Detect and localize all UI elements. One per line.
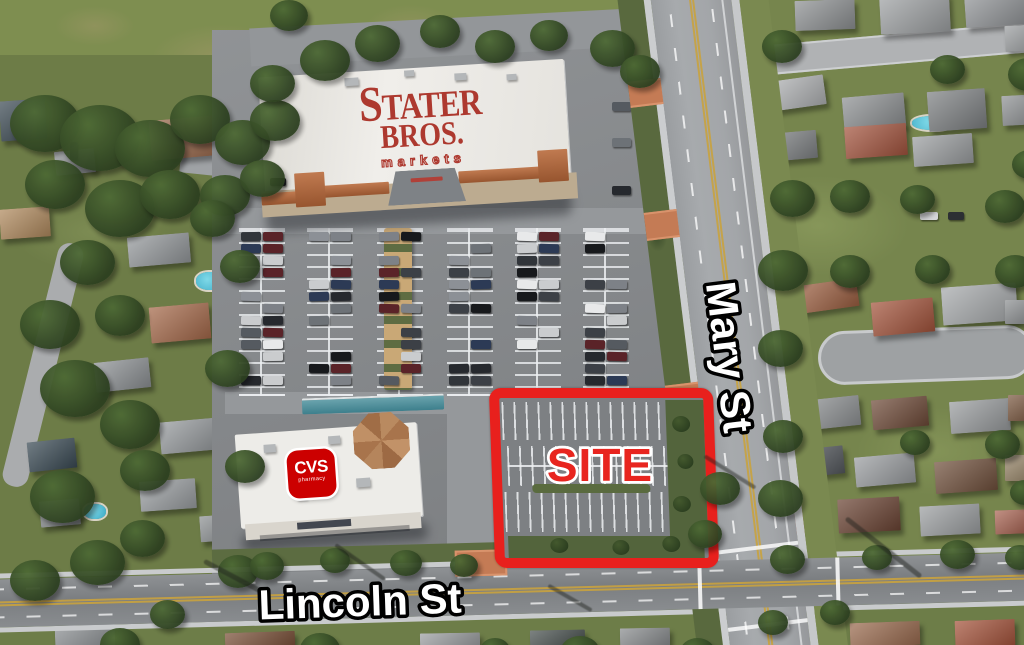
tree [150,600,185,629]
parked-car [471,340,491,349]
parked-car [517,316,537,326]
site-label-text: SITE [547,439,653,491]
tree [940,540,975,569]
tree [20,300,80,349]
house-roof [420,632,480,645]
cvs-logo-name: CVS [287,457,336,477]
parked-car [539,292,559,302]
parked-car [612,138,631,147]
parked-car [539,280,559,289]
house-roof [854,452,916,487]
parked-car [379,292,399,302]
parked-car [585,376,605,385]
tree [915,255,950,284]
parked-car [539,256,559,265]
cvs-logo: CVS pharmacy [286,448,337,499]
parked-car [585,244,605,253]
parked-car [331,268,351,277]
parked-car [539,328,559,337]
parked-car [241,292,261,302]
parked-car [585,352,605,361]
stater-bros-building: STATER BROS. markets [253,45,578,228]
parked-car [379,232,399,242]
parked-car [585,232,605,242]
parked-car [449,376,469,385]
parked-car [263,328,283,338]
parked-car [309,232,329,241]
parked-car [379,304,399,314]
house-roof [995,509,1024,534]
tree [250,65,295,102]
house-roof [1005,455,1024,481]
parked-car [331,292,351,302]
tree [205,350,250,387]
parked-car [449,364,469,374]
parked-car [471,376,491,385]
parked-car [517,244,537,254]
parked-car [607,280,627,289]
house-roof [794,0,855,31]
parked-car [517,340,537,349]
tree [420,15,460,48]
tree [900,185,935,214]
parked-car [449,268,469,277]
parked-car [585,280,605,289]
rooftop-unit [263,444,276,453]
tree [70,540,125,585]
parked-car [401,328,421,337]
house-roof [850,621,921,645]
parked-car [263,376,283,385]
parked-car [401,364,421,373]
parked-car [309,316,329,325]
tree [30,470,95,523]
parked-car [471,244,491,254]
parked-car [471,364,491,374]
tree [300,40,350,81]
center-line [0,574,1024,603]
parked-car [309,280,329,289]
parked-car [263,244,283,253]
rooftop-unit [506,74,516,81]
house-roof [1008,395,1024,421]
tree [240,160,285,197]
parked-car [585,328,605,338]
parked-car [449,280,469,289]
tree [220,250,260,283]
tree [190,200,235,237]
tree [900,430,930,455]
house-roof [837,496,901,533]
parked-car [471,280,491,290]
tree [40,360,110,417]
house-roof [919,503,980,536]
house-roof [1001,94,1024,126]
parked-car [241,232,261,241]
house-roof [927,88,988,132]
parked-car [449,256,469,265]
parked-car [517,292,537,301]
tree [60,240,115,285]
parked-car [607,304,627,313]
parked-car [241,316,261,325]
tree [830,255,870,288]
parked-car [585,304,605,314]
parked-car [612,186,631,195]
parked-car [331,364,351,373]
parked-car [241,328,261,338]
tree [985,190,1024,223]
parked-car [585,364,605,374]
tree [95,295,145,336]
parked-car [263,268,283,277]
tree [355,25,400,62]
house-roof [879,0,951,35]
parked-car [263,304,283,314]
tree [820,600,850,625]
parked-car [263,352,283,361]
driveway-apron [644,209,680,241]
parked-car [309,364,329,373]
house-roof [871,297,936,336]
house-roof [27,438,78,473]
parked-car [539,232,559,241]
tree [25,160,85,209]
parked-car [331,376,351,385]
house-roof [871,396,929,431]
parked-car [331,304,351,313]
tree [985,430,1020,459]
center-line [0,577,1024,606]
tree [530,20,568,51]
parked-car [585,340,605,350]
tree [475,30,515,63]
parked-car [379,256,399,265]
tree [830,180,870,213]
site-label: SITE [520,434,680,498]
parked-car [401,352,421,361]
rooftop-unit [356,477,371,487]
cul-de-sac [817,324,1024,386]
tree [225,450,265,483]
tree [100,400,160,449]
tree [10,560,60,601]
tree [688,520,722,548]
aerial-site-map: STATER BROS. markets CVS pharmacy [0,0,1024,645]
tree [758,480,803,517]
parked-car [263,316,283,325]
parked-car [379,376,399,386]
tree [930,55,965,84]
lincoln-st-label: Lincoln St [209,561,511,641]
house-roof [0,206,51,239]
parked-car [401,304,421,313]
parked-car [331,256,351,265]
parked-car [539,244,559,254]
house-roof [964,0,1024,28]
tree [758,250,808,291]
house-roof [955,619,1016,645]
rooftop-unit [404,70,414,77]
parked-car [331,232,351,241]
parked-car [241,340,261,349]
parked-car [401,232,421,242]
parked-car [612,102,631,111]
tree [120,520,165,557]
house-roof [620,628,670,645]
house-roof [1005,300,1024,324]
house-roof [934,458,998,494]
crosswalk-line [697,561,702,609]
house-roof [844,123,908,159]
tree [762,30,802,63]
tree [1005,545,1024,570]
house-roof [912,133,974,167]
parked-car [379,268,399,277]
parked-car [607,340,627,350]
parked-car [331,352,351,361]
parked-car [449,292,469,301]
parked-car [471,268,491,277]
parked-car [401,340,421,349]
parked-car [607,316,627,325]
tree [758,610,788,635]
parked-car [263,256,283,265]
parked-car [263,232,283,241]
house-roof [149,302,212,343]
parked-car [517,268,537,277]
tree [120,450,170,491]
parked-car [331,280,351,290]
parked-car [449,304,469,313]
house-roof [1004,24,1024,52]
parked-car [517,232,537,242]
entrance-tower [537,149,569,183]
crosswalk-line [835,557,840,605]
tree [620,55,660,88]
parked-car [607,352,627,362]
lincoln-st-label-text: Lincoln St [258,574,463,628]
house-roof [949,398,1011,434]
parked-car [517,256,537,265]
tree [270,0,308,31]
tree [250,100,300,141]
tree [770,180,815,217]
tree [770,545,805,574]
rooftop-unit [328,435,341,444]
entrance-tower [294,172,326,208]
parked-car [471,304,491,313]
entrance-canopy [386,167,466,206]
parked-car [948,212,964,220]
parked-car [401,268,421,277]
house-roof [127,232,191,267]
parked-car [607,376,627,385]
parked-car [517,280,537,290]
house-roof [159,418,220,455]
stater-bros-roof-logo: STATER BROS. markets [339,75,504,172]
parked-car [379,280,399,289]
parked-car [263,340,283,349]
mary-st-label-text: Mary St [697,279,762,435]
cvs-building: CVS pharmacy [232,411,436,546]
parked-car [309,292,329,302]
